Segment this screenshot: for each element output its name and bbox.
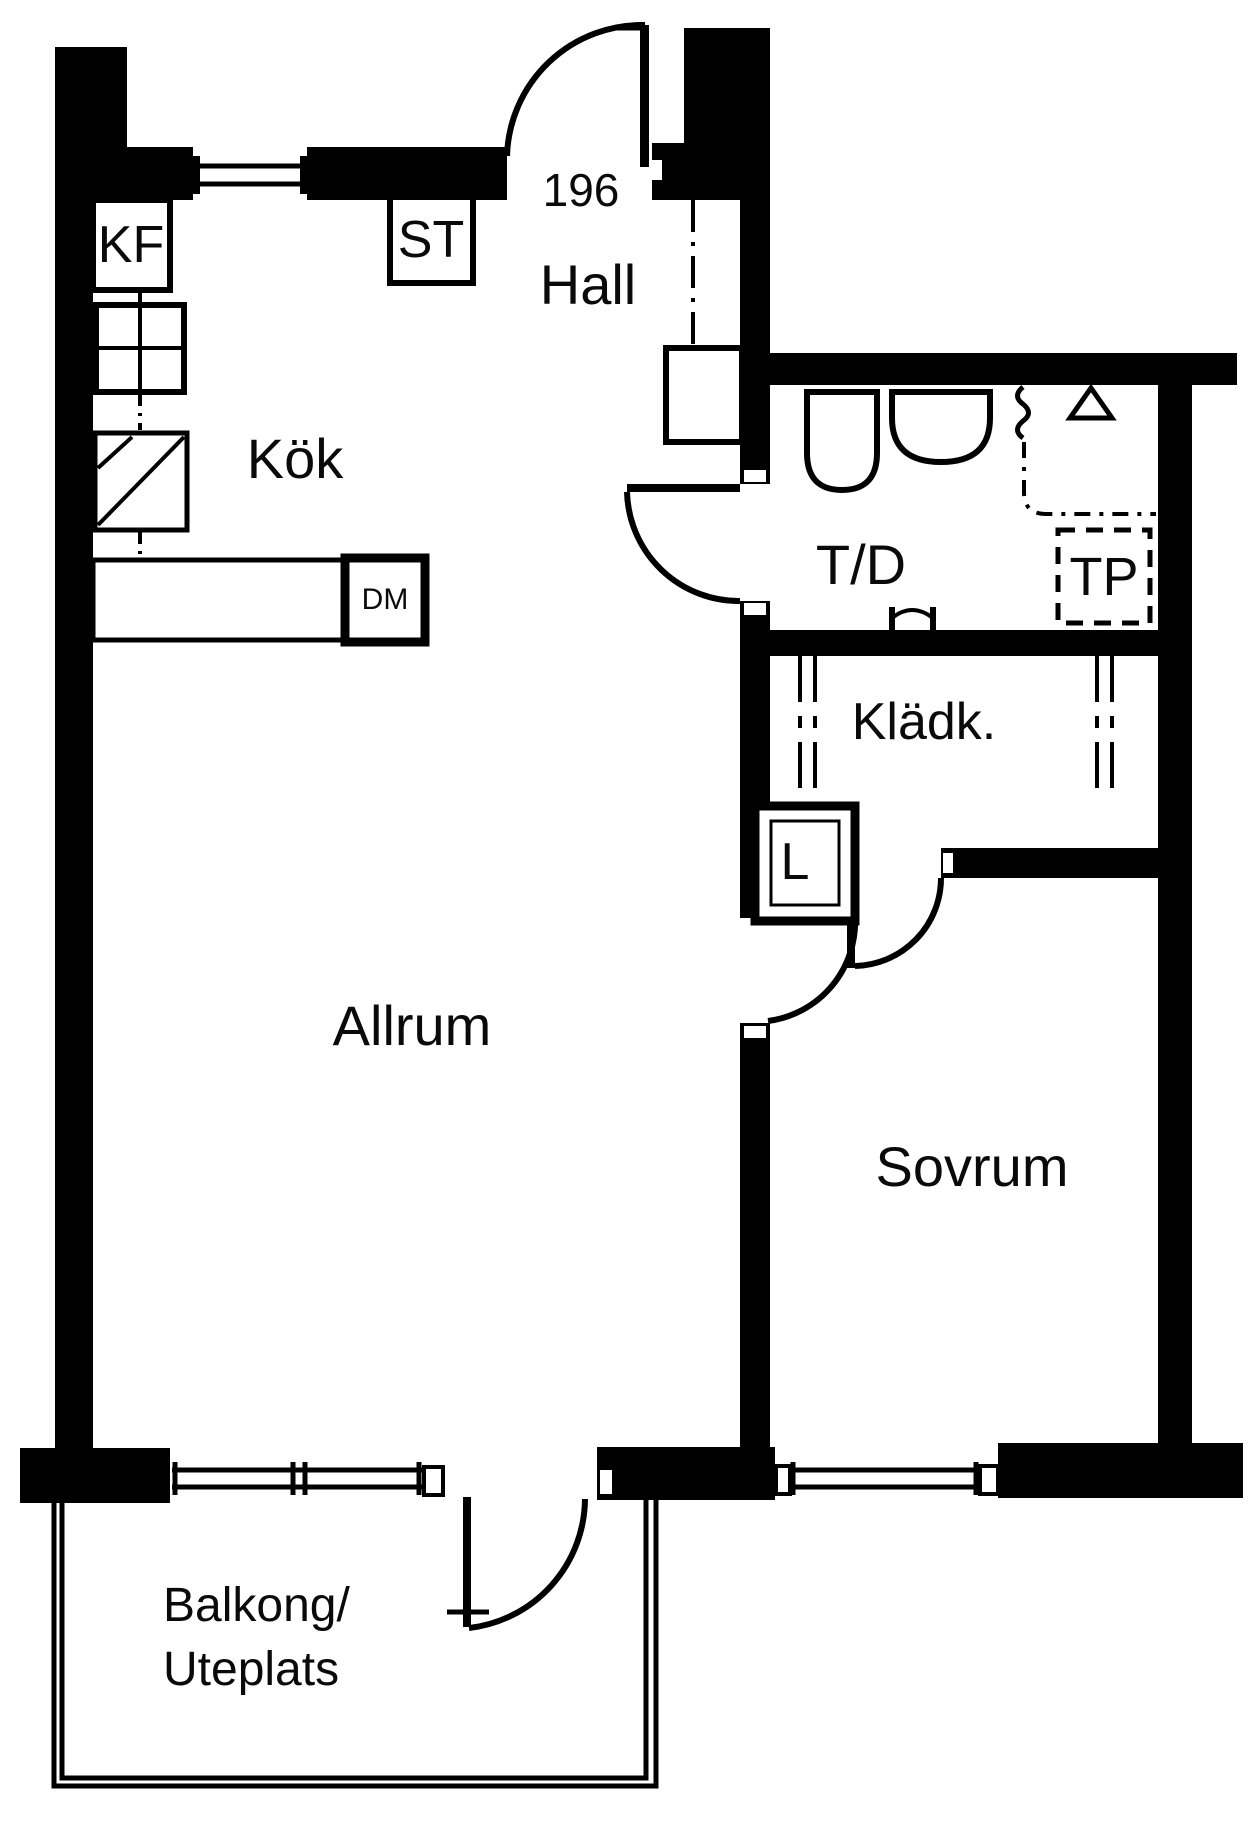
balcony-door-leaf xyxy=(463,1497,471,1627)
balcony-railing-outer xyxy=(54,1500,656,1786)
cap-entry-slot xyxy=(652,160,662,180)
cap-closet-door-right xyxy=(943,853,953,873)
wall-top-a xyxy=(127,147,193,200)
bedroom-window-ticks xyxy=(793,1462,976,1495)
shower-curtain-icon xyxy=(1018,387,1029,438)
cap-sovrum-window-left xyxy=(776,1466,790,1494)
cap-sovrum-window-right xyxy=(980,1466,998,1494)
room-label-balkong-line1: Balkong/ xyxy=(163,1582,350,1630)
kitchen-window xyxy=(193,166,307,184)
cap-bath-door-bottom xyxy=(744,603,766,615)
wall-top-b xyxy=(307,147,507,200)
wall-bath-bottom xyxy=(740,630,1158,656)
fixture-label-tp: TP xyxy=(1069,550,1138,604)
wall-bottom-mid-block xyxy=(597,1447,775,1500)
washbasin-icon xyxy=(892,392,990,462)
room-label-td: T/D xyxy=(816,537,906,593)
clothes-rail-left xyxy=(800,656,815,788)
cap-balcony-door-left xyxy=(424,1467,443,1495)
room-label-kok: Kök xyxy=(247,431,344,487)
kitchen-counter xyxy=(93,560,345,640)
wall-left-outer xyxy=(55,200,93,1448)
wall-bath-top xyxy=(740,353,1237,385)
room-label-sovrum: Sovrum xyxy=(876,1139,1069,1195)
balcony-railing xyxy=(54,1500,656,1786)
entry-door-leaf xyxy=(640,25,649,167)
fixture-label-dm: DM xyxy=(362,585,409,615)
apartment-number: 196 xyxy=(543,167,620,213)
room-label-allrum: Allrum xyxy=(333,998,492,1054)
towel-rail-bar xyxy=(892,610,933,618)
room-label-hall: Hall xyxy=(540,257,636,313)
cap-sovrum-wall-end xyxy=(744,1026,766,1038)
towel-rail-post-right xyxy=(930,607,936,631)
wall-top-left-corner xyxy=(55,47,127,200)
shower-drain-icon xyxy=(1070,388,1112,418)
hall-fixtures xyxy=(666,200,742,442)
closet-door-arc xyxy=(855,878,941,966)
fixture-label-kf: KF xyxy=(98,219,164,271)
cap-bath-door-top xyxy=(744,470,766,482)
wall-bottom-left-block xyxy=(20,1448,170,1503)
wall-allrum-sovrum xyxy=(740,1023,770,1447)
wall-closet-bottom-right xyxy=(941,848,1158,878)
bedroom-door-arc xyxy=(768,917,855,1021)
towel-rail-icon xyxy=(889,607,936,631)
hall-cabinet xyxy=(666,348,742,442)
fixture-label-st: ST xyxy=(398,214,464,266)
living-room-window-ticks xyxy=(175,1462,419,1495)
wall-bottom-right-block xyxy=(998,1443,1243,1498)
towel-rail-post-left xyxy=(889,607,895,631)
bedroom-window xyxy=(790,1470,980,1487)
walls xyxy=(20,28,1243,1503)
living-room-window xyxy=(172,1470,424,1487)
floor-plan: KF ST 196 Hall Kök DM T/D TP Klädk. L Al… xyxy=(0,0,1248,1840)
window-cap-left xyxy=(188,156,200,194)
room-label-kladk: Klädk. xyxy=(852,696,997,748)
balcony-railing-inner xyxy=(62,1500,646,1778)
shower-enclosure-dashed xyxy=(1024,442,1156,514)
cap-balcony-door-right xyxy=(600,1470,612,1494)
clothes-rail-right xyxy=(1097,656,1112,788)
entry-door-arc xyxy=(507,25,645,156)
wall-right-outer xyxy=(1158,385,1192,1443)
bath-door-leaf xyxy=(627,484,740,492)
room-label-balkong-line2: Uteplats xyxy=(163,1646,339,1694)
bath-door-arc xyxy=(627,492,740,601)
toilet-icon xyxy=(807,392,877,490)
fixture-label-l: L xyxy=(781,836,810,888)
wall-top-stub xyxy=(684,28,770,200)
balcony-door-arc xyxy=(469,1499,585,1628)
sink-icon xyxy=(95,433,187,530)
stove-icon xyxy=(96,305,184,392)
